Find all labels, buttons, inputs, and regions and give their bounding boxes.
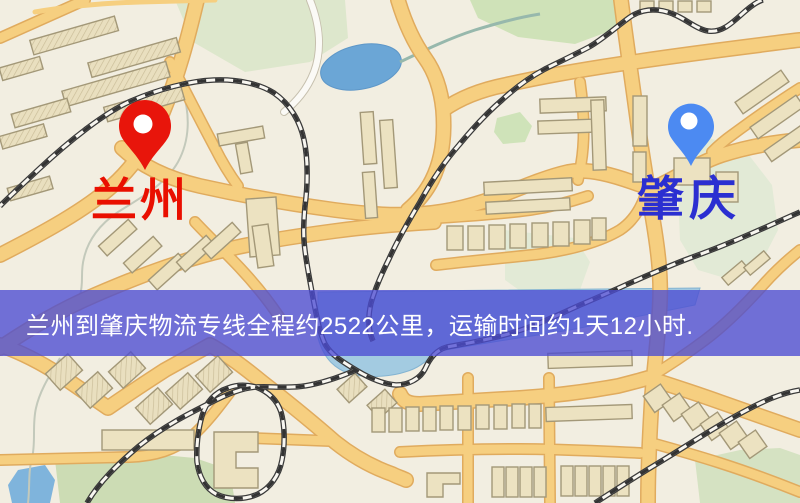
route-info-banner: 兰州到肇庆物流专线全程约2522公里，运输时间约1天12小时. xyxy=(0,290,800,356)
map-canvas xyxy=(0,0,800,503)
route-info-text: 兰州到肇庆物流专线全程约2522公里，运输时间约1天12小时. xyxy=(0,306,694,341)
destination-city-label: 肇庆 xyxy=(637,175,741,222)
origin-city-label: 兰州 xyxy=(91,177,189,223)
map-view: 兰州 肇庆 兰州到肇庆物流专线全程约2522公里，运输时间约1天12小时. xyxy=(0,0,800,503)
